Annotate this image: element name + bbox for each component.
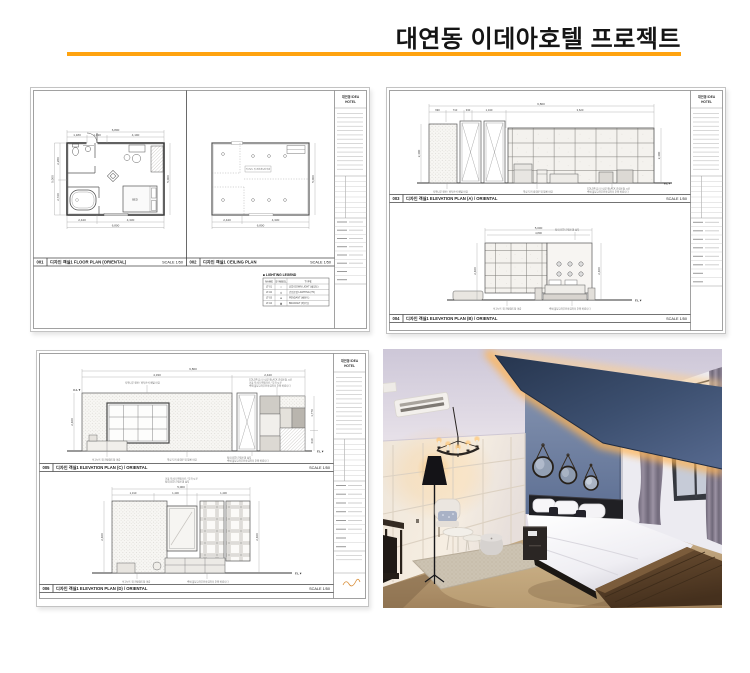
svg-text:330: 330 bbox=[466, 108, 471, 112]
svg-text:벽체 몰딩교차부분마감처리 주의 바랍니다: 벽체 몰딩교차부분마감처리 주의 바랍니다 bbox=[227, 459, 269, 463]
svg-text:6,800: 6,800 bbox=[112, 223, 120, 227]
svg-text:SCALE 1/50: SCALE 1/50 bbox=[666, 197, 687, 201]
elevation-c-drawing: C.L▼ 6,800 4,330 2,440 2,400 1,770 630 F… bbox=[67, 367, 324, 463]
svg-text:005: 005 bbox=[43, 465, 51, 470]
sheet1-titleblock: 대연동 IDEA HOTEL bbox=[335, 94, 367, 284]
nightstand bbox=[523, 527, 547, 560]
svg-text:2,400: 2,400 bbox=[597, 267, 601, 275]
svg-text:1,430: 1,430 bbox=[93, 133, 101, 137]
svg-text:BRACKET (벽부등): BRACKET (벽부등) bbox=[289, 301, 309, 305]
elevation-d-titlebar: 006 디자인 객실1 ELEVATION PLAN (D) / ORIENTA… bbox=[43, 585, 331, 592]
svg-text:1,770: 1,770 bbox=[310, 409, 314, 417]
svg-text:벽체 몰딩교차부분마감처리 주의 바랍니다: 벽체 몰딩교차부분마감처리 주의 바랍니다 bbox=[549, 307, 591, 311]
hotel-room-photo bbox=[383, 349, 722, 608]
svg-text:간접조명 LIGHTING (T5): 간접조명 LIGHTING (T5) bbox=[289, 290, 315, 294]
svg-text:객실 도어 방화문 위 필름 마감: 객실 도어 방화문 위 필름 마감 bbox=[523, 190, 554, 194]
page-title: 대연동 이데아호텔 프로젝트 bbox=[0, 19, 681, 54]
svg-text:■ LIGHTING LEGEND: ■ LIGHTING LEGEND bbox=[263, 273, 297, 277]
ceiling-plan-titlebar: 002 디자인 객실1 CEILING PLAN SCALE 1/50 bbox=[190, 259, 332, 266]
drawing-sheet-elevations-ab: 대연동 IDEA HOTEL bbox=[386, 87, 726, 334]
svg-text:006: 006 bbox=[43, 586, 51, 591]
svg-text:1,310: 1,310 bbox=[130, 491, 137, 495]
svg-text:5,000: 5,000 bbox=[311, 175, 315, 183]
svg-text:PENDANT (펜던트): PENDANT (펜던트) bbox=[289, 296, 309, 300]
hotel-room-photo-svg bbox=[383, 349, 722, 608]
svg-text:5,000: 5,000 bbox=[535, 226, 543, 230]
svg-text:디자인 객실1 ELEVATION PLAN (C) / O: 디자인 객실1 ELEVATION PLAN (C) / ORIENTAL bbox=[56, 464, 148, 471]
svg-text:F.L▼: F.L▼ bbox=[635, 299, 642, 303]
sheet3-titleblock: 대연동 IDEA HOTEL bbox=[334, 358, 366, 586]
svg-text:SCALE 1/50: SCALE 1/50 bbox=[162, 261, 183, 265]
svg-text:630: 630 bbox=[310, 438, 314, 443]
svg-text:⊕: ⊕ bbox=[280, 297, 282, 300]
lighting-legend: ■ LIGHTING LEGEND NAME SYMBOL TYPE LT-01… bbox=[263, 273, 329, 306]
ac-vent-small bbox=[383, 382, 396, 392]
sheet2-titleblock: 대연동 IDEA HOTEL bbox=[691, 94, 723, 286]
svg-text:001: 001 bbox=[37, 260, 45, 265]
svg-text:5,000: 5,000 bbox=[177, 485, 185, 489]
svg-text:4,330: 4,330 bbox=[272, 218, 280, 222]
svg-text:LT-01: LT-01 bbox=[266, 286, 273, 289]
pouf-stool bbox=[480, 534, 503, 556]
floor-plan-drawing: BED 6,800 1,180 1,430 4,190 2,440 4,330 … bbox=[50, 128, 170, 229]
svg-text:디자인 객실1 CEILING PLAN: 디자인 객실1 CEILING PLAN bbox=[203, 259, 256, 266]
svg-text:2,400: 2,400 bbox=[100, 533, 104, 541]
svg-text:710: 710 bbox=[453, 108, 458, 112]
svg-text:002: 002 bbox=[190, 260, 198, 265]
svg-text:2,280: 2,280 bbox=[56, 157, 60, 165]
title-accent-rule bbox=[67, 52, 681, 56]
svg-text:대연동 IDEA: 대연동 IDEA bbox=[341, 358, 359, 363]
svg-text:6,800: 6,800 bbox=[257, 223, 265, 227]
svg-text:대연동 IDEA: 대연동 IDEA bbox=[342, 94, 360, 99]
svg-text:4,800: 4,800 bbox=[535, 231, 542, 235]
svg-text:LT-03: LT-03 bbox=[266, 297, 273, 300]
svg-text:SCALE 1/50: SCALE 1/50 bbox=[666, 317, 687, 321]
svg-text:디자인 객실1 ELEVATION PLAN (A) / O: 디자인 객실1 ELEVATION PLAN (A) / ORIENTAL bbox=[406, 195, 498, 202]
titleblock-logo-sketch bbox=[343, 579, 360, 586]
svg-text:TYPE: TYPE bbox=[304, 279, 311, 283]
svg-text:2,440: 2,440 bbox=[264, 373, 272, 377]
svg-text:2,720: 2,720 bbox=[56, 193, 60, 201]
svg-text:003: 003 bbox=[393, 196, 401, 201]
svg-text:1,430: 1,430 bbox=[220, 491, 227, 495]
svg-text:침대 LED 간접조명 설치: 침대 LED 간접조명 설치 bbox=[165, 480, 189, 484]
ceiling-plan-drawing: 석고보드 위 친환경도장 마감 2,440 4,330 6,800 5,000 bbox=[212, 142, 315, 230]
svg-text:벽체 몰딩교차부분마감처리 주의 바랍니다: 벽체 몰딩교차부분마감처리 주의 바랍니다 bbox=[249, 384, 291, 388]
svg-text:2,400: 2,400 bbox=[473, 267, 477, 275]
svg-text:690: 690 bbox=[435, 108, 440, 112]
svg-text:디자인 객실1 ELEVATION PLAN (D) / O: 디자인 객실1 ELEVATION PLAN (D) / ORIENTAL bbox=[56, 585, 148, 592]
floor-plan-titlebar: 001 디자인 객실1 FLOOR PLAN (ORIENTAL) SCALE … bbox=[37, 259, 184, 266]
svg-text:2,440: 2,440 bbox=[78, 218, 86, 222]
svg-text:SYMBOL: SYMBOL bbox=[275, 279, 287, 283]
svg-text:1,340: 1,340 bbox=[486, 108, 493, 112]
svg-text:4,330: 4,330 bbox=[127, 218, 135, 222]
svg-text:1,430: 1,430 bbox=[172, 491, 179, 495]
elevation-a-titlebar: 003 디자인 객실1 ELEVATION PLAN (A) / ORIENTA… bbox=[393, 195, 688, 202]
drawing-sheet-elevations-cd: 대연동 IDEA HOTEL bbox=[36, 350, 369, 607]
elevation-d-drawing: 5,000 1,310 1,430 1,430 2,400 2,400 F.L▼… bbox=[92, 477, 302, 584]
svg-text:5,000: 5,000 bbox=[166, 175, 170, 183]
svg-text:004: 004 bbox=[393, 316, 401, 321]
elevation-b-titlebar: 004 디자인 객실1 ELEVATION PLAN (B) / ORIENTA… bbox=[393, 315, 688, 322]
elevation-a-drawing: 6,800 690 710 330 1,340 3,620 2,400 2,40… bbox=[417, 102, 672, 194]
svg-text:C.L▼: C.L▼ bbox=[73, 388, 81, 392]
svg-text:2,400: 2,400 bbox=[417, 149, 421, 157]
svg-text:SCALE 1/50: SCALE 1/50 bbox=[309, 587, 330, 591]
svg-text:F.L▼: F.L▼ bbox=[317, 450, 324, 454]
svg-text:석고보드 위 친환경도장 마감: 석고보드 위 친환경도장 마감 bbox=[92, 458, 121, 462]
svg-text:6,800: 6,800 bbox=[112, 128, 120, 132]
elevation-c-mosaic bbox=[260, 396, 305, 451]
sheet1-svg: 대연동 IDEA HOTEL bbox=[31, 88, 369, 331]
titleblock-text-rows bbox=[337, 113, 363, 170]
svg-text:디자인 객실1 ELEVATION PLAN (B) / O: 디자인 객실1 ELEVATION PLAN (B) / ORIENTAL bbox=[406, 315, 498, 322]
svg-text:F.L▼: F.L▼ bbox=[295, 572, 302, 576]
svg-text:F.L▼: F.L▼ bbox=[664, 182, 671, 186]
svg-text:LT-02: LT-02 bbox=[266, 291, 273, 294]
svg-text:석고보드 위 친환경도장 마감: 석고보드 위 친환경도장 마감 bbox=[493, 307, 522, 311]
svg-text:HOTEL: HOTEL bbox=[344, 364, 355, 368]
svg-text:1,180: 1,180 bbox=[73, 133, 81, 137]
sheet3-svg: 대연동 IDEA HOTEL bbox=[37, 351, 368, 606]
svg-text:2,400: 2,400 bbox=[70, 418, 74, 426]
svg-text:객실 도어 방화문 위 필름 마감: 객실 도어 방화문 위 필름 마감 bbox=[167, 458, 198, 462]
svg-text:디자인 객실1 FLOOR PLAN (ORIENTAL): 디자인 객실1 FLOOR PLAN (ORIENTAL) bbox=[50, 259, 127, 266]
elevation-b-drawing: 5,000 4,800 2,400 2,400 F.L▼ 침대 LED 간접조명… bbox=[447, 226, 642, 311]
drawing-sheet-floor-ceiling: 대연동 IDEA HOTEL bbox=[30, 87, 370, 332]
svg-text:SCALE 1/50: SCALE 1/50 bbox=[310, 261, 331, 265]
svg-text:2,400: 2,400 bbox=[657, 151, 661, 159]
svg-text:5,000: 5,000 bbox=[50, 175, 54, 183]
svg-text:자작나무 합판 / 바둑판식 배열 마감: 자작나무 합판 / 바둑판식 배열 마감 bbox=[125, 381, 161, 385]
svg-text:LT-04: LT-04 bbox=[266, 302, 273, 305]
svg-text:◎: ◎ bbox=[280, 291, 282, 294]
svg-text:HOTEL: HOTEL bbox=[701, 100, 712, 104]
svg-text:4,330: 4,330 bbox=[153, 373, 161, 377]
svg-text:HOTEL: HOTEL bbox=[345, 100, 356, 104]
svg-text:▣: ▣ bbox=[280, 302, 282, 305]
elevation-c-titlebar: 005 디자인 객실1 ELEVATION PLAN (C) / ORIENTA… bbox=[43, 464, 331, 471]
svg-text:6,800: 6,800 bbox=[537, 102, 545, 106]
svg-text:6,800: 6,800 bbox=[189, 367, 197, 371]
svg-text:침대 LED 간접조명 설치: 침대 LED 간접조명 설치 bbox=[555, 228, 579, 232]
svg-text:✧: ✧ bbox=[280, 286, 282, 289]
svg-text:3,620: 3,620 bbox=[577, 108, 584, 112]
svg-text:자작나무 합판 / 바둑판식 배열 마감: 자작나무 합판 / 바둑판식 배열 마감 bbox=[433, 190, 469, 194]
svg-text:벽체 몰딩교차부분마감처리 주의 바랍니다: 벽체 몰딩교차부분마감처리 주의 바랍니다 bbox=[587, 190, 629, 194]
svg-text:SCALE 1/50: SCALE 1/50 bbox=[309, 466, 330, 470]
svg-text:NAME: NAME bbox=[265, 279, 273, 283]
svg-text:대연동 IDEA: 대연동 IDEA bbox=[698, 94, 716, 99]
svg-text:벽체 몰딩교차부분마감처리 주의 바랍니다: 벽체 몰딩교차부분마감처리 주의 바랍니다 bbox=[187, 580, 229, 584]
svg-text:2,440: 2,440 bbox=[223, 218, 231, 222]
sheet2-svg: 대연동 IDEA HOTEL bbox=[387, 88, 725, 333]
svg-text:석고보드 위 친환경도장 마감: 석고보드 위 친환경도장 마감 bbox=[122, 580, 151, 584]
svg-text:2,400: 2,400 bbox=[255, 533, 259, 541]
svg-text:LED DOWN LIGHT (매입등): LED DOWN LIGHT (매입등) bbox=[289, 285, 319, 289]
svg-text:BED: BED bbox=[132, 198, 138, 202]
svg-text:4,190: 4,190 bbox=[132, 133, 140, 137]
